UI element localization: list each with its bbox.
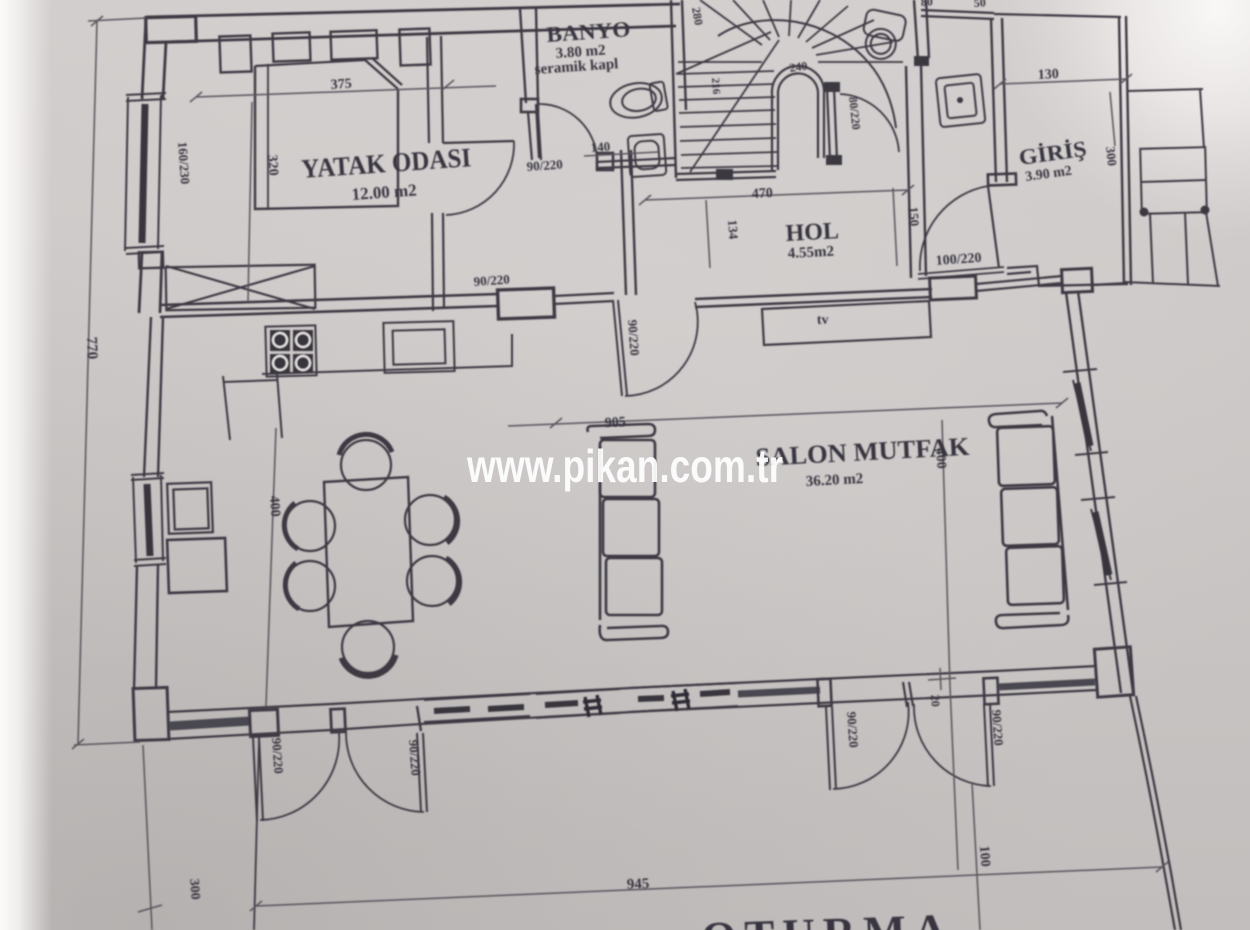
svg-text:375: 375 <box>330 77 352 93</box>
svg-text:HOL: HOL <box>785 218 840 247</box>
svg-text:90/220: 90/220 <box>844 711 861 748</box>
svg-text:300: 300 <box>186 878 202 900</box>
svg-text:90/220: 90/220 <box>406 739 423 776</box>
svg-text:150: 150 <box>906 206 922 226</box>
svg-text:320: 320 <box>264 154 280 176</box>
svg-text:400: 400 <box>932 447 948 469</box>
svg-text:240: 240 <box>788 59 808 75</box>
svg-text:160/230: 160/230 <box>175 141 193 185</box>
svg-text:80: 80 <box>920 0 933 9</box>
svg-text:134: 134 <box>725 219 741 240</box>
svg-text:20: 20 <box>928 694 943 707</box>
svg-text:100: 100 <box>976 845 992 867</box>
svg-text:www.pikan.com.tr: www.pikan.com.tr <box>466 440 783 492</box>
svg-text:470: 470 <box>751 186 773 202</box>
svg-text:300: 300 <box>1103 146 1120 167</box>
svg-text:90/220: 90/220 <box>473 272 510 289</box>
svg-text:400: 400 <box>266 495 282 517</box>
svg-text:905: 905 <box>604 415 626 431</box>
svg-text:tv: tv <box>817 313 829 328</box>
svg-text:140: 140 <box>590 139 610 155</box>
svg-text:216: 216 <box>709 77 722 95</box>
svg-text:50: 50 <box>973 0 986 10</box>
svg-text:130: 130 <box>1037 67 1059 83</box>
svg-text:90/220: 90/220 <box>269 737 286 774</box>
svg-text:100/220: 100/220 <box>935 251 982 269</box>
svg-text:36.20 m2: 36.20 m2 <box>805 471 863 490</box>
svg-text:4.55m2: 4.55m2 <box>787 244 834 262</box>
svg-text:770: 770 <box>83 336 100 359</box>
svg-text:90/220: 90/220 <box>989 709 1006 746</box>
svg-text:90/220: 90/220 <box>625 319 642 356</box>
svg-text:945: 945 <box>626 876 649 893</box>
svg-text:90/220: 90/220 <box>526 157 563 174</box>
